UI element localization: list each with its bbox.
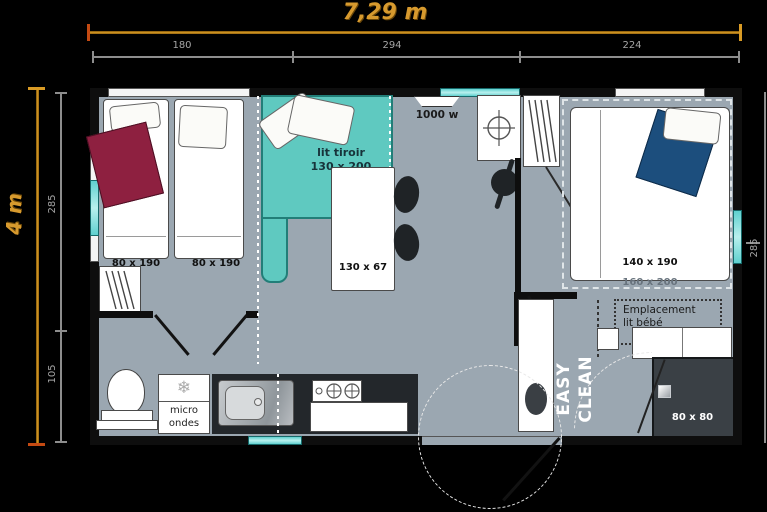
- bed-left-1-foldline: [106, 236, 166, 237]
- brand-logo: EASY CLEAN: [553, 345, 611, 433]
- shower-drain: [658, 385, 671, 398]
- window-bedroom-left: [108, 88, 250, 97]
- wardrobe-master: [523, 95, 560, 167]
- left-segment-1: 285: [47, 182, 59, 226]
- snowflake-icon: ❄: [159, 375, 209, 402]
- toilet-base: [96, 420, 158, 430]
- gas-burners-icon: [313, 381, 361, 401]
- bed-left-2-pillow: [178, 105, 228, 149]
- hob: [312, 380, 362, 402]
- kitchen-cabinet: [310, 402, 408, 432]
- right-dimension-line-gray: [764, 92, 766, 443]
- entry-door-arc: [418, 365, 562, 509]
- left-dim-tick-bottom: [28, 443, 45, 446]
- top-segment-1: 180: [160, 40, 204, 52]
- floor-plan-canvas: 7,29 m 180 294 224 4 m 285 105 285 80 x …: [0, 0, 767, 512]
- top-tick-2: [292, 51, 294, 63]
- window-bedroom-left-side-glass: [90, 180, 99, 236]
- window-master-top: [615, 88, 705, 97]
- top-dim-tick-left: [87, 24, 90, 41]
- right-segment-1: 285: [749, 226, 761, 270]
- total-width-label: 7,29 m: [300, 0, 470, 25]
- bed-master-zone-label: 160 x 200: [605, 277, 695, 288]
- top-segment-2: 294: [370, 40, 414, 52]
- toilet-bowl: [107, 369, 145, 415]
- bed-left-2-label: 80 x 190: [180, 258, 252, 269]
- heater-label: 1000 w: [405, 109, 469, 121]
- bed-master-foldline: [600, 110, 601, 278]
- total-height-label: 4 m: [2, 184, 26, 244]
- brand-line2: CLEAN: [575, 345, 597, 433]
- master-wall-bottom: [515, 292, 577, 299]
- bedroom-wall-stub-left: [99, 311, 153, 318]
- left-segment-2: 105: [47, 352, 59, 396]
- bed-master-pillow: [662, 107, 721, 145]
- left-tick-2: [55, 330, 67, 332]
- top-dimension-line-orange: [88, 31, 741, 34]
- left-dimension-line-orange: [36, 88, 39, 445]
- shower-label: 80 x 80: [655, 412, 730, 423]
- window-kitchen-bottom: [248, 436, 302, 445]
- left-dim-tick-top: [28, 87, 45, 90]
- baby-cot-line1: Emplacement: [623, 304, 720, 317]
- bed-master-label: 140 x 190: [605, 257, 695, 268]
- top-tick-4: [738, 51, 740, 63]
- partition-dotted-left: [257, 96, 259, 364]
- hanging-clothes-icon: [100, 267, 140, 313]
- top-tick-1: [92, 51, 94, 63]
- partition-wall-living-master: [515, 158, 521, 298]
- light-column: [477, 95, 521, 161]
- fridge-microwave: ❄ micro ondes: [158, 374, 210, 434]
- appliance-label: micro ondes: [159, 402, 209, 430]
- bed-left-2-foldline: [177, 236, 241, 237]
- hanging-clothes-icon: [524, 96, 559, 166]
- window-master-right: [733, 210, 742, 264]
- bench-divider: [682, 328, 683, 358]
- top-dimension-line-gray: [92, 56, 740, 58]
- kitchen-dotted-line: [277, 374, 279, 434]
- wardrobe-left: [99, 266, 141, 314]
- table-label: 130 x 67: [331, 262, 395, 273]
- partition-dotted-living: [517, 96, 519, 156]
- top-segment-3: 224: [610, 40, 654, 52]
- sink-faucet: [254, 398, 262, 406]
- left-tick-3: [55, 441, 67, 443]
- left-tick-1: [55, 92, 67, 94]
- top-tick-3: [519, 51, 521, 63]
- tv-swivel: [491, 169, 518, 196]
- appliance-line1: micro: [159, 404, 209, 417]
- top-dim-tick-right: [739, 24, 742, 41]
- appliance-line2: ondes: [159, 417, 209, 430]
- ceiling-light-icon: [478, 96, 520, 158]
- left-dimension-line-gray: [60, 92, 62, 443]
- sofa-label-line1: lit tiroir: [293, 146, 389, 160]
